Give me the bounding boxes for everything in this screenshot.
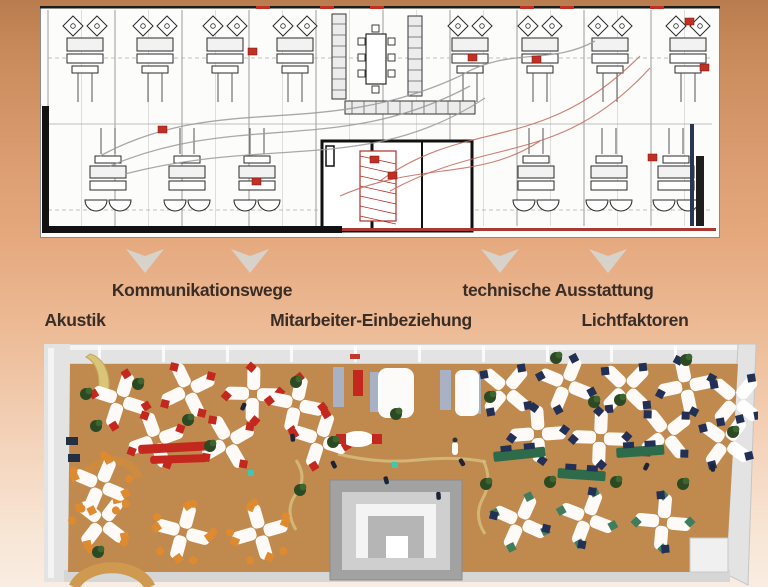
render-3d-floorplan-drawing — [38, 342, 758, 587]
label-mitarbeiter-einbeziehung: Mitarbeiter-Einbeziehung — [270, 310, 472, 331]
down-arrow-icon — [481, 247, 519, 273]
cad-floor-plan-image — [40, 6, 720, 238]
label-lichtfaktoren: Lichtfaktoren — [582, 310, 689, 331]
label-akustik: Akustik — [44, 310, 105, 331]
down-arrow-icon — [126, 247, 164, 273]
render-3d-floorplan-image — [38, 342, 758, 587]
down-arrow-icon — [589, 247, 627, 273]
label-kommunikationswege: Kommunikationswege — [112, 280, 292, 301]
down-arrow-icon — [231, 247, 269, 273]
cad-floor-plan-drawing — [40, 6, 720, 238]
label-technische-ausstattung: technische Ausstattung — [462, 280, 653, 301]
infographic-canvas: Kommunikationswege technische Ausstattun… — [0, 0, 768, 587]
